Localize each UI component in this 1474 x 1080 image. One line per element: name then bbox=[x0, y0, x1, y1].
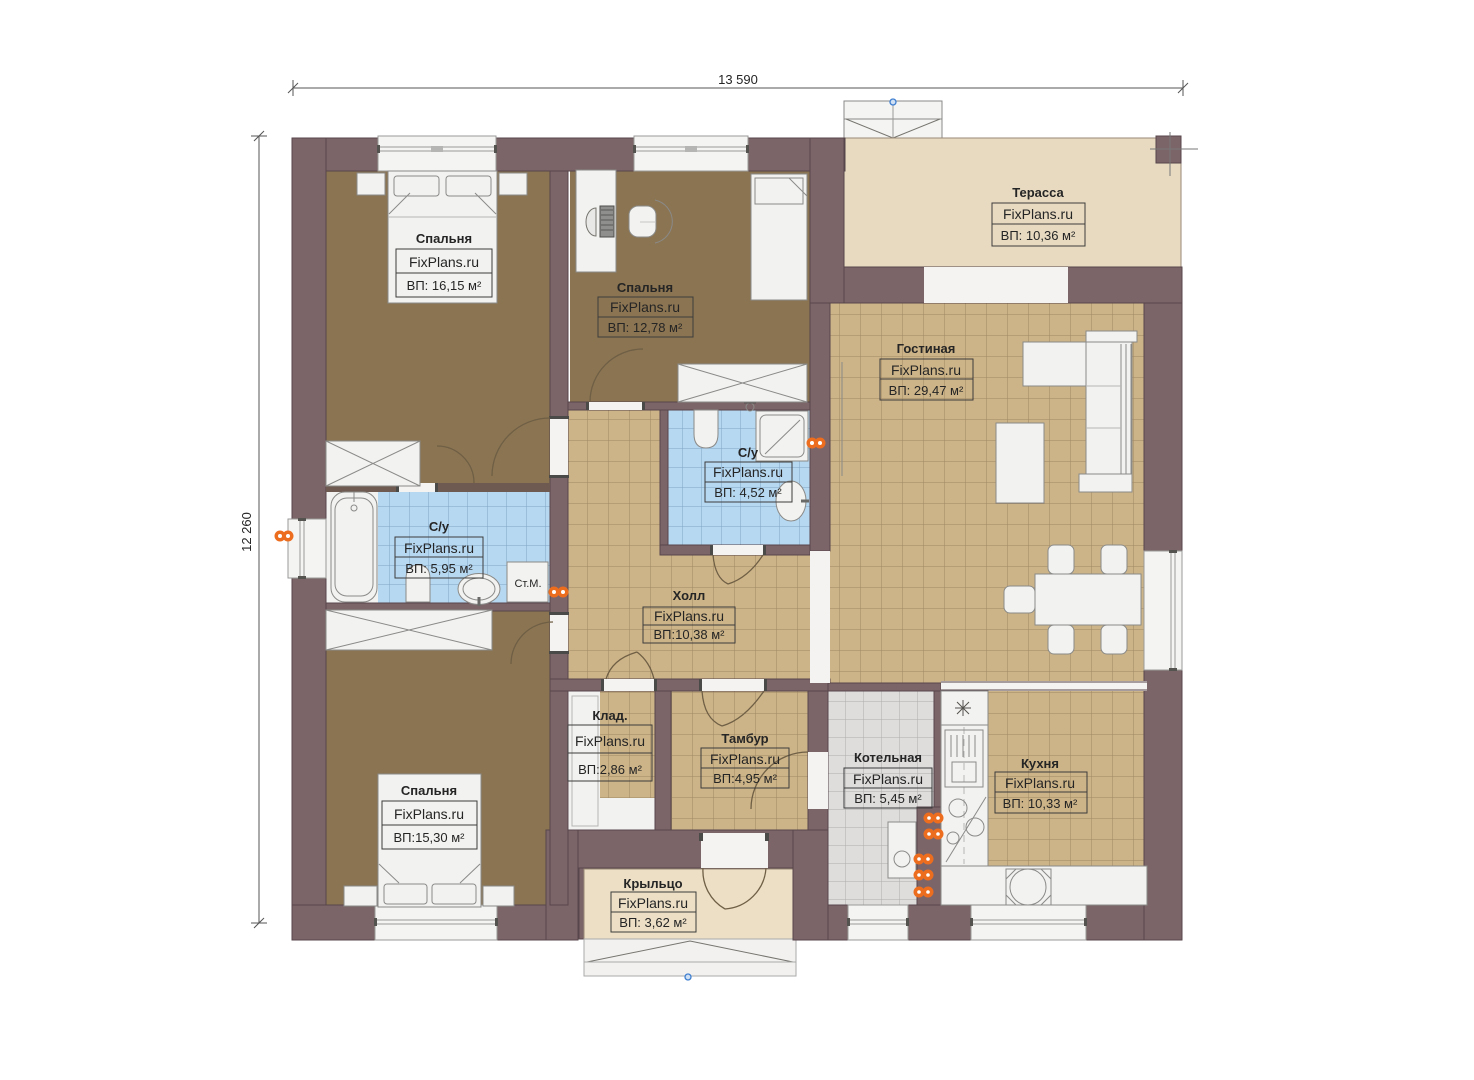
svg-text:ВП:10,38 м²: ВП:10,38 м² bbox=[653, 627, 725, 642]
svg-text:Тамбур: Тамбур bbox=[721, 731, 768, 746]
svg-text:FixPlans.ru: FixPlans.ru bbox=[404, 540, 474, 556]
svg-text:FixPlans.ru: FixPlans.ru bbox=[654, 608, 724, 624]
svg-text:С/у: С/у bbox=[429, 519, 450, 534]
svg-text:ВП: 10,33 м²: ВП: 10,33 м² bbox=[1003, 796, 1078, 811]
svg-text:FixPlans.ru: FixPlans.ru bbox=[1003, 206, 1073, 222]
svg-text:FixPlans.ru: FixPlans.ru bbox=[618, 895, 688, 911]
svg-text:Крыльцо: Крыльцо bbox=[623, 876, 682, 891]
svg-text:Спальня: Спальня bbox=[617, 280, 673, 295]
svg-text:FixPlans.ru: FixPlans.ru bbox=[610, 299, 680, 315]
svg-text:ВП: 16,15 м²: ВП: 16,15 м² bbox=[407, 278, 482, 293]
svg-text:Кухня: Кухня bbox=[1021, 756, 1059, 771]
svg-text:FixPlans.ru: FixPlans.ru bbox=[891, 362, 961, 378]
svg-text:FixPlans.ru: FixPlans.ru bbox=[853, 771, 923, 787]
svg-text:ВП:15,30 м²: ВП:15,30 м² bbox=[393, 830, 465, 845]
svg-text:FixPlans.ru: FixPlans.ru bbox=[409, 254, 479, 270]
svg-text:ВП: 29,47 м²: ВП: 29,47 м² bbox=[889, 383, 964, 398]
svg-text:ВП: 3,62 м²: ВП: 3,62 м² bbox=[619, 915, 687, 930]
svg-text:ВП: 4,52 м²: ВП: 4,52 м² bbox=[714, 485, 782, 500]
svg-text:ВП: 10,36 м²: ВП: 10,36 м² bbox=[1001, 228, 1076, 243]
svg-text:ВП: 5,45 м²: ВП: 5,45 м² bbox=[854, 791, 922, 806]
svg-text:С/у: С/у bbox=[738, 445, 759, 460]
svg-text:Спальня: Спальня bbox=[401, 783, 457, 798]
svg-text:Терасса: Терасса bbox=[1012, 185, 1064, 200]
svg-text:FixPlans.ru: FixPlans.ru bbox=[710, 751, 780, 767]
svg-text:ВП: 5,95 м²: ВП: 5,95 м² bbox=[405, 561, 473, 576]
svg-text:Котельная: Котельная bbox=[854, 750, 922, 765]
svg-text:FixPlans.ru: FixPlans.ru bbox=[394, 806, 464, 822]
svg-text:ВП:2,86 м²: ВП:2,86 м² bbox=[578, 762, 642, 777]
svg-text:12 260: 12 260 bbox=[239, 512, 254, 552]
svg-text:Холл: Холл bbox=[673, 588, 706, 603]
svg-text:13 590: 13 590 bbox=[718, 72, 758, 87]
svg-text:FixPlans.ru: FixPlans.ru bbox=[713, 464, 783, 480]
svg-text:ВП: 12,78 м²: ВП: 12,78 м² bbox=[608, 320, 683, 335]
svg-text:Гостиная: Гостиная bbox=[897, 341, 956, 356]
svg-text:ВП:4,95 м²: ВП:4,95 м² bbox=[713, 771, 777, 786]
svg-text:Клад.: Клад. bbox=[592, 708, 627, 723]
svg-text:Ст.М.: Ст.М. bbox=[514, 578, 541, 590]
svg-text:Спальня: Спальня bbox=[416, 231, 472, 246]
svg-text:FixPlans.ru: FixPlans.ru bbox=[575, 733, 645, 749]
svg-text:FixPlans.ru: FixPlans.ru bbox=[1005, 775, 1075, 791]
